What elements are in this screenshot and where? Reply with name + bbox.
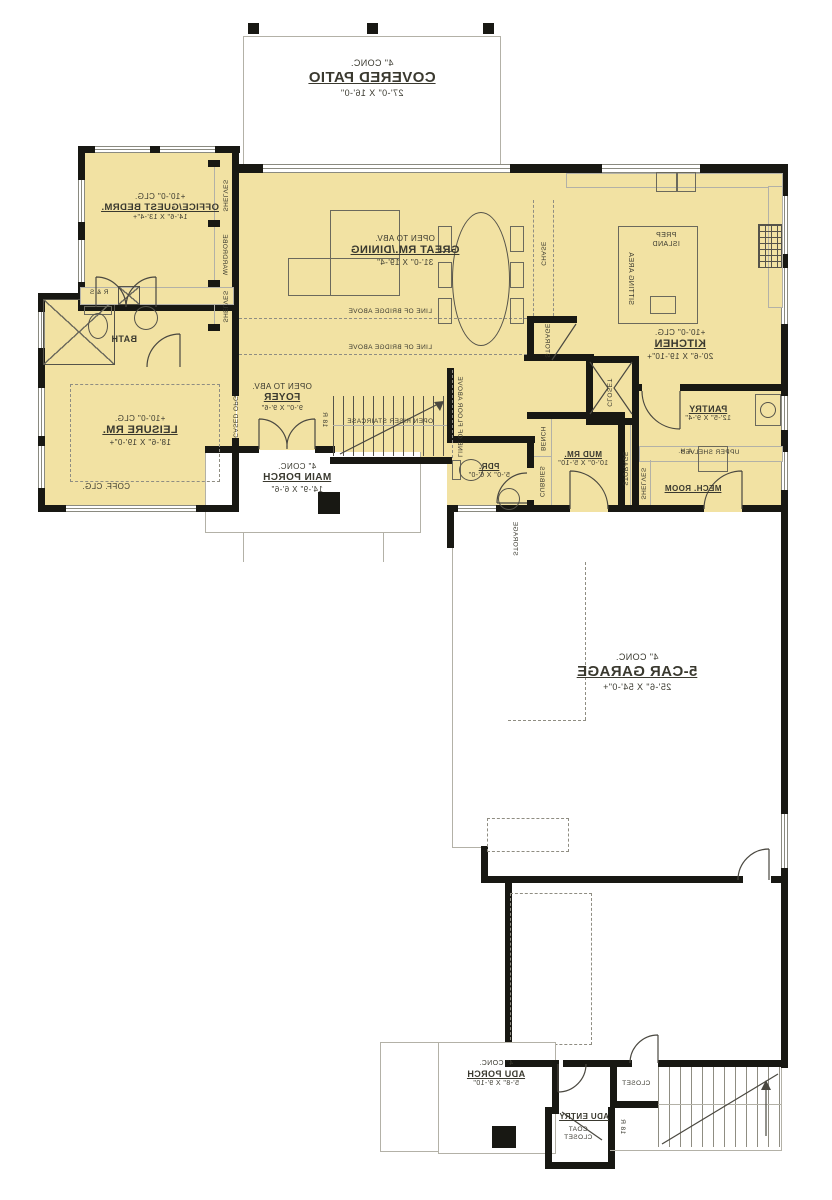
dashed-overhang <box>510 893 592 1045</box>
chase-line <box>553 200 554 316</box>
pdr-sink <box>498 488 520 510</box>
wall <box>232 146 239 372</box>
bridge-line <box>239 354 527 355</box>
riser-count-label: 18 R <box>318 402 332 436</box>
linen-box <box>118 286 140 305</box>
bath-sink <box>134 306 158 330</box>
wall <box>315 446 335 453</box>
coffered-ceiling-label: COFF. CLG. <box>74 482 138 492</box>
wall <box>658 1060 788 1067</box>
chase-line <box>533 200 534 316</box>
island-sink <box>650 296 676 314</box>
main-porch-label: 4" CONC. MAIN PORCH 14'-9" X 6'-6" <box>242 462 352 495</box>
cased-opening-label: CASED OPG. <box>228 392 242 438</box>
wall <box>586 356 593 424</box>
door-arc <box>558 1064 586 1092</box>
garage-apron-line <box>452 847 484 848</box>
wall <box>447 512 454 548</box>
wardrobe-label: WARDROBE <box>218 230 232 278</box>
bath-label: BATH <box>96 334 152 345</box>
stair-boundary <box>781 1068 782 1150</box>
office-label: +10'-0" CLG. OFFICE/GUEST BEDRM. 14'-6" … <box>90 192 230 223</box>
wall <box>527 316 534 361</box>
sliding-door-glass <box>263 164 510 173</box>
garage-window <box>781 814 788 868</box>
cooktop <box>758 224 782 268</box>
wall <box>510 164 602 173</box>
wall <box>527 436 534 468</box>
dashed-overhang <box>487 818 569 852</box>
rod-shelf-label: R & S <box>84 289 114 297</box>
prep-island-label: PREP ISLAND <box>636 232 696 250</box>
window <box>38 388 45 436</box>
shelves-line <box>650 460 651 505</box>
wall <box>524 354 594 361</box>
bridge-above-label: LINE OF BRIDGE ABOVE <box>330 308 450 316</box>
chase-label: CHASE <box>535 228 551 278</box>
leisure-label: +10'-0" CLG. LEISURE RM. 18'-6" X 19'-0"… <box>70 414 210 448</box>
cubbies-label: CUBBIES <box>534 460 550 502</box>
great-room-label: OPEN TO ABV. GREAT RM./DINING 31'-0" X 1… <box>325 234 485 268</box>
walkway-line <box>380 1042 381 1152</box>
wall <box>208 280 220 287</box>
wall <box>742 505 788 512</box>
dining-chair <box>510 226 524 252</box>
wall <box>781 512 788 1068</box>
stair-line <box>658 1104 782 1105</box>
porch-step-line <box>243 532 244 562</box>
wall <box>608 505 704 512</box>
dashed-line <box>585 562 586 720</box>
walkway-line <box>380 1151 438 1152</box>
wall <box>552 1060 559 1114</box>
adu-porch-column <box>492 1126 516 1148</box>
shelves-label: SHELVES <box>636 458 650 508</box>
riser-count-lower-label: 18 R <box>616 1108 630 1144</box>
mud-room-label: MUD RM. 10'-0" X 5'-10" <box>540 450 626 469</box>
wall <box>563 1060 632 1067</box>
storage-chase-label: STORAGE <box>540 320 554 360</box>
wall-oven <box>656 172 678 192</box>
mech-room-label: MECH. ROOM <box>648 484 738 494</box>
storage-label: STORAGE <box>618 440 632 496</box>
wall <box>208 160 220 167</box>
wall <box>771 876 788 883</box>
dining-chair <box>510 298 524 324</box>
stair-boundary <box>610 1150 782 1151</box>
pantry-label: PANTRY 12'-5" X 9'-4" <box>650 404 766 424</box>
coat-closet-label: COAT CLOSET <box>552 1126 604 1142</box>
air-handler-label: A.H. <box>672 448 698 456</box>
sitting-area-label: SITTING AREA <box>622 240 640 316</box>
door-arc <box>630 1035 658 1063</box>
window <box>66 505 196 512</box>
wall <box>208 324 220 331</box>
wall <box>680 384 788 391</box>
walkway-line <box>380 1042 438 1043</box>
wall <box>545 1162 615 1169</box>
window <box>160 146 215 153</box>
kitchen-label: +10'-0" CLG. KITCHEN 20'-6" X 19'-10"+ <box>610 328 750 362</box>
garage-label: 4" CONC. 5-CAR GARAGE 25'-6" X 54'-0"+ <box>552 652 722 693</box>
window <box>458 505 496 512</box>
shelves-bottom-label: SHELVES <box>218 288 232 324</box>
dashed-line <box>508 720 586 721</box>
window <box>38 446 45 488</box>
garage-apron-line <box>452 548 453 848</box>
pdr-label: PDR. 5'-0" X 6'-0" <box>455 462 523 481</box>
open-riser-label: OPEN RISER STAIRCASE <box>332 418 448 426</box>
dining-chair <box>510 262 524 288</box>
window <box>781 396 788 430</box>
window <box>78 240 85 282</box>
wall <box>700 164 788 173</box>
floor-above-label: LINE OF FLOOR ABOVE <box>452 376 466 456</box>
dining-table <box>452 212 510 346</box>
foyer-label: OPEN TO ABV. FOYER 9'-0" X 9'-6" <box>244 382 320 413</box>
wall <box>481 876 743 883</box>
wall <box>632 384 642 391</box>
patio-column <box>367 23 378 34</box>
patio-column <box>248 23 259 34</box>
adu-porch-label: 4" CONC. ADU PORCH 5'-8" X 9'-10" <box>446 1060 546 1089</box>
wall <box>447 505 458 512</box>
bridge-above-label: LINE OF BRIDGE ABOVE <box>330 344 450 352</box>
wall <box>610 1101 658 1108</box>
bench-label: BENCH <box>534 422 550 454</box>
porch-column <box>318 492 340 514</box>
closet-label: CLOSET <box>600 368 618 416</box>
lower-stairs <box>658 1067 782 1147</box>
window <box>78 180 85 222</box>
covered-patio-outline <box>243 36 501 168</box>
wall <box>237 164 263 173</box>
patio-column <box>483 23 494 34</box>
closet-lower-label: CLOSET <box>614 1080 658 1088</box>
storage-garage-label: STORAGE <box>508 514 522 562</box>
upper-shelves-label: UPPER SHELVES <box>652 449 768 457</box>
porch-step-line <box>383 532 384 562</box>
wall-oven <box>676 172 696 192</box>
covered-patio-label: 4" CONC. COVERED PATIO 27'-0" X 16'-0" <box>292 58 452 99</box>
window <box>95 146 150 153</box>
shelves-top-label: SHELVES <box>218 172 232 218</box>
floor-plan: 4" CONC. COVERED PATIO 27'-0" X 16'-0" +… <box>0 0 832 1200</box>
adu-entry-label: ADU ENTRY <box>544 1112 624 1122</box>
